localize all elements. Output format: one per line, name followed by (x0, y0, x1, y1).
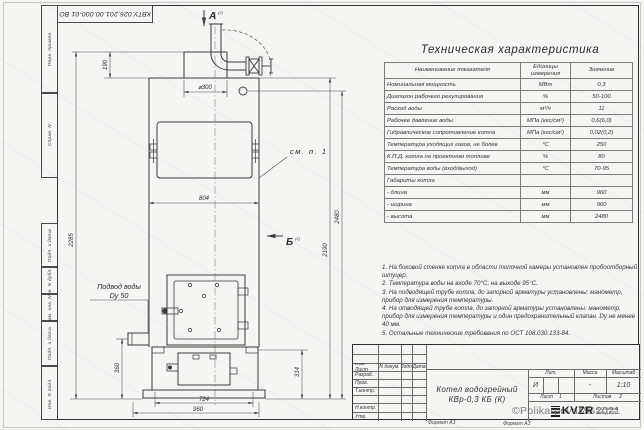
boiler-body (149, 78, 259, 347)
list-cell: Лист 1 (528, 393, 574, 401)
dim-left-height: 2285 (69, 233, 75, 248)
note-4: 4. На отводящей трубе котла, до запорной… (382, 305, 640, 328)
row-utv: Утв. (353, 412, 378, 421)
massa-value: - (574, 377, 606, 393)
masshtab-label: Масштаб (606, 369, 641, 377)
listov-value: 2 (619, 394, 622, 400)
tech-table-title: Техническая характеристика (388, 44, 632, 56)
upper-door (150, 122, 259, 178)
note-3: 3. На подводящей трубе котла, до запорно… (382, 289, 640, 304)
tech-characteristics-table: Наименование показателя Единицы измерени… (384, 62, 633, 223)
water-supply-label-line2: Dу 50 (110, 291, 129, 300)
view-b-ref: (2) (295, 236, 301, 241)
water-supply-label-line1: Подвод воды (97, 282, 141, 291)
masshtab-value: 1:10 (606, 377, 641, 393)
massa-label: Масса (574, 369, 606, 377)
table-row: К.П.Д. котла на проектном топливе%80 (385, 151, 633, 163)
col-header-name: Наименование показателя (385, 63, 521, 79)
copyright-watermark: ©PolikarpovaMG2021 (512, 405, 620, 417)
ash-door (167, 353, 237, 385)
table-row: Номинальная мощностьМВт0,3 (385, 79, 633, 91)
dim-overall-height: 2480 (335, 210, 341, 225)
table-row: Гидравлическое сопротивление котлаМПа (к… (385, 127, 633, 139)
dim-chimney-diameter: ⌀300 (198, 85, 212, 91)
sensor-boss (239, 87, 247, 95)
row-prov: Пров. (353, 379, 378, 387)
col-header-units: Единицы измерения (521, 63, 571, 79)
water-inlet-stub (128, 333, 149, 345)
dim-body-width: 804 (199, 196, 210, 202)
col-izm-list: Изм. Лист (353, 363, 378, 371)
lit-label: Лит. (528, 369, 574, 377)
list-label: Лист (540, 394, 553, 400)
table-row: Рабочее давление водыМПа (кгс/см²)0,6(6,… (385, 115, 633, 127)
dim-overall-width: 960 (193, 407, 204, 413)
table-row: Температура уходящих газов, не более°С25… (385, 139, 633, 151)
note-2: 2. Температура воды на входе 70°С, на вы… (382, 280, 640, 288)
table-header-row: Наименование показателя Единицы измерени… (385, 63, 633, 79)
dim-right-height: 2190 (323, 243, 329, 258)
view-b-label: Б (286, 237, 293, 248)
table-row: Расход водым³/ч11 (385, 103, 633, 115)
row-tkontr: Т.контр. (353, 387, 378, 395)
col-n-dokum: N докум. (378, 363, 401, 371)
lit-value: И (528, 377, 543, 393)
dimension-lines (70, 52, 346, 417)
see-note-label: см. п. 1 (290, 147, 328, 156)
format-label-2: Формат А3 (503, 421, 530, 427)
row-nkontr: Н.контр. (353, 403, 378, 412)
table-row: - ширинамм960 (385, 199, 633, 211)
product-name-line2: КВр-0,3 КБ (К) (449, 395, 506, 405)
furnace-door (162, 275, 248, 345)
table-row: Габариты котла (385, 175, 633, 187)
dim-ash-height: 314 (295, 366, 301, 377)
listov-label: Листов (593, 394, 611, 400)
col-header-value: Значение (571, 63, 633, 79)
table-row: Диапазон рабочего регулирования%50-100 (385, 91, 633, 103)
view-a-label: А (208, 11, 216, 22)
dim-top-height: 190 (103, 59, 109, 70)
view-arrows (204, 10, 283, 236)
product-name-line1: Котел водогрейный (436, 385, 517, 395)
view-a-ref: (2) (218, 10, 224, 15)
format-label: Формат А3 (428, 420, 455, 426)
note-1: 1. На боковой стенке котла в области топ… (382, 264, 640, 279)
dim-base-width: 724 (199, 397, 210, 403)
boiler-outline (128, 24, 273, 398)
table-row: Температура воды (вход/выход)°С70-95 (385, 163, 633, 175)
table-row: - длинамм960 (385, 187, 633, 199)
col-data: Дата (412, 363, 426, 371)
row-razrab: Разраб. (353, 371, 378, 379)
col-podp: Подп. (401, 363, 412, 371)
rotation-arc (222, 30, 271, 76)
table-row: - высотамм2480 (385, 211, 633, 223)
listov-cell: Листов 2 (574, 393, 641, 401)
list-value: 1 (559, 394, 562, 400)
flue-valve (246, 57, 273, 75)
flue-collar (184, 52, 227, 78)
technical-notes: 1. На боковой стенке котла в области топ… (382, 264, 640, 338)
note-5: 5. Остальные технические требования по О… (382, 330, 640, 338)
dim-lower-height: 360 (115, 362, 121, 373)
